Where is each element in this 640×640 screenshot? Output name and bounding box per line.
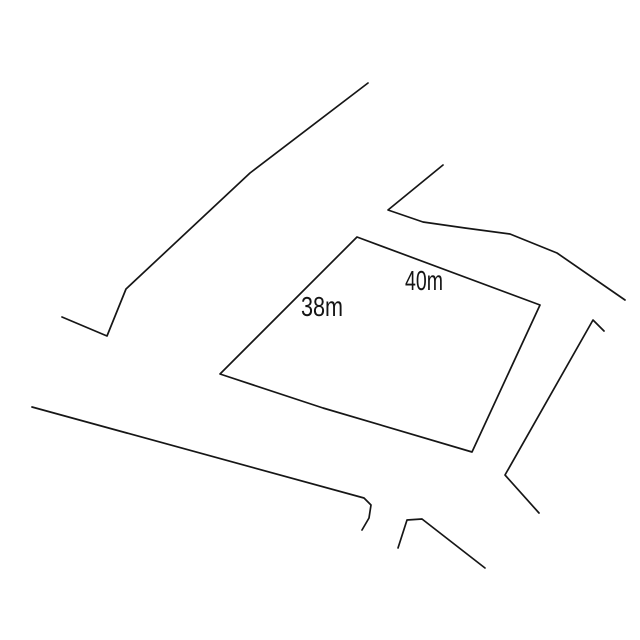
plot-svg: 40m38m xyxy=(0,0,640,640)
land-plot-diagram: 40m38m xyxy=(0,0,640,640)
road-line-bottom-right xyxy=(398,519,485,568)
parcel-outline xyxy=(220,237,540,452)
dimension-label-40m: 40m xyxy=(405,265,443,296)
dimension-label-38m: 38m xyxy=(301,291,343,322)
road-line-bottom xyxy=(32,407,371,530)
